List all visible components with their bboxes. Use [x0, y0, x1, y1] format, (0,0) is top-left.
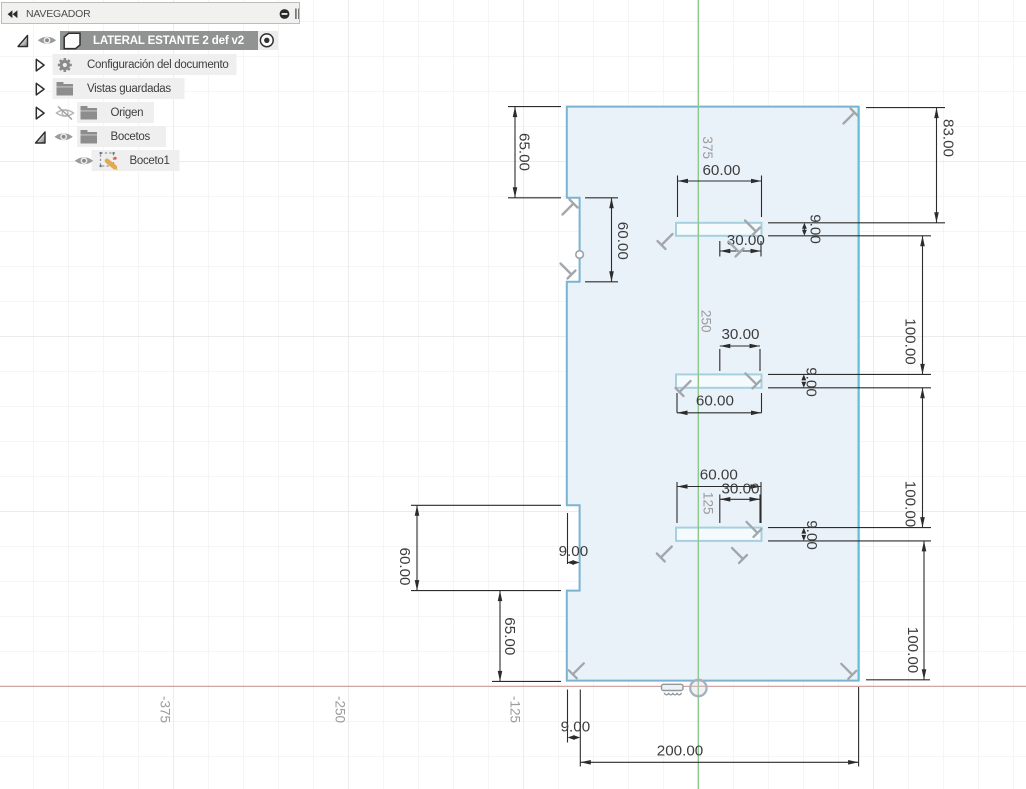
svg-text:-250: -250 [333, 696, 348, 723]
svg-text:83.00: 83.00 [939, 119, 956, 157]
svg-text:9.00: 9.00 [561, 719, 591, 736]
svg-text:30.00: 30.00 [721, 326, 759, 343]
svg-text:9.00: 9.00 [802, 367, 819, 397]
svg-text:100.00: 100.00 [904, 627, 921, 673]
svg-text:9.00: 9.00 [559, 543, 589, 560]
svg-text:9.00: 9.00 [806, 214, 823, 244]
svg-text:60.00: 60.00 [696, 393, 734, 410]
svg-text:60.00: 60.00 [396, 547, 413, 585]
svg-text:60.00: 60.00 [614, 222, 631, 260]
svg-text:100.00: 100.00 [901, 318, 918, 364]
svg-text:125: 125 [701, 492, 716, 515]
svg-text:-125: -125 [508, 696, 523, 723]
svg-text:375: 375 [700, 136, 715, 159]
svg-text:9.00: 9.00 [803, 520, 820, 550]
svg-text:250: 250 [698, 310, 713, 333]
svg-text:200.00: 200.00 [657, 743, 703, 760]
svg-text:-375: -375 [158, 696, 173, 723]
svg-text:60.00: 60.00 [702, 162, 740, 179]
svg-text:65.00: 65.00 [501, 617, 518, 655]
svg-text:65.00: 65.00 [515, 133, 532, 171]
svg-text:30.00: 30.00 [721, 481, 759, 498]
svg-text:100.00: 100.00 [901, 481, 918, 527]
